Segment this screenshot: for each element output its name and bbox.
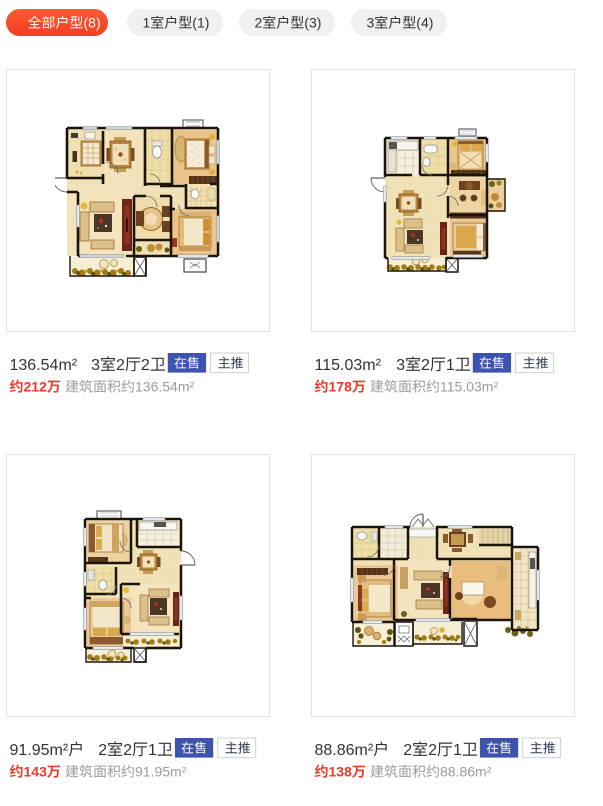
- svg-text:1: 1: [148, 742, 157, 759]
- svg-text:1: 1: [143, 15, 151, 31]
- svg-text:2: 2: [116, 357, 125, 374]
- svg-text:212: 212: [24, 379, 48, 395]
- svg-text:3: 3: [396, 357, 405, 374]
- svg-text:(1): (1): [192, 15, 209, 31]
- svg-text:88.86m²: 88.86m²: [315, 742, 374, 759]
- svg-text:91.95m²: 91.95m²: [135, 764, 187, 780]
- svg-text:115.03m²: 115.03m²: [440, 379, 498, 395]
- svg-text:91.95m²: 91.95m²: [10, 742, 69, 759]
- svg-text:2: 2: [403, 742, 412, 759]
- svg-text:88.86m²: 88.86m²: [440, 764, 492, 780]
- svg-text:115.03m²: 115.03m²: [315, 357, 382, 374]
- svg-text:178: 178: [329, 379, 353, 395]
- svg-text:(8): (8): [84, 15, 101, 31]
- svg-text:2: 2: [421, 357, 430, 374]
- svg-text:2: 2: [123, 742, 132, 759]
- svg-text:2: 2: [141, 357, 150, 374]
- svg-text:1: 1: [446, 357, 455, 374]
- svg-text:(4): (4): [416, 15, 433, 31]
- svg-text:2: 2: [255, 15, 263, 31]
- svg-text:136.54m²: 136.54m²: [10, 357, 78, 374]
- svg-text:2: 2: [428, 742, 437, 759]
- svg-text:138: 138: [329, 764, 353, 780]
- svg-text:3: 3: [91, 357, 100, 374]
- svg-text:3: 3: [367, 15, 375, 31]
- svg-text:(3): (3): [304, 15, 321, 31]
- svg-text:136.54m²: 136.54m²: [135, 379, 194, 395]
- svg-text:143: 143: [24, 764, 48, 780]
- svg-text:2: 2: [98, 742, 107, 759]
- svg-text:1: 1: [453, 742, 462, 759]
